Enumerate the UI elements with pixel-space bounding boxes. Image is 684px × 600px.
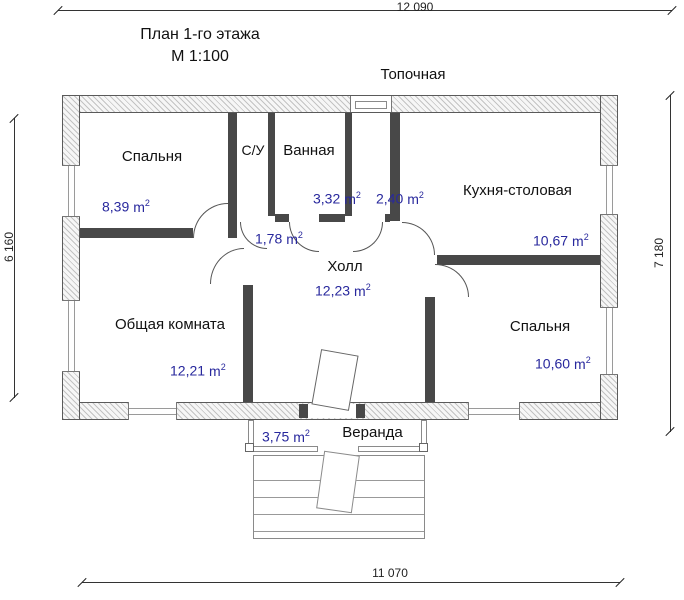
area-value: 12,23 [315, 283, 350, 299]
door-arc-boiler [353, 222, 383, 252]
area-sup: 2 [221, 362, 226, 372]
veranda-post-left [245, 443, 254, 452]
room-name-bedroom1: Спальня [92, 148, 212, 165]
room-name-hall: Холл [305, 258, 385, 275]
room-area-boiler: 2,40m2 [376, 190, 424, 207]
veranda-post-right [419, 443, 428, 452]
room-name-bedroom2: Спальня [485, 318, 595, 335]
window-right-1 [600, 165, 618, 215]
step-line [254, 514, 424, 515]
area-unit: m [344, 191, 356, 207]
area-sup: 2 [356, 190, 361, 200]
area-value: 2,40 [376, 191, 403, 207]
area-sup: 2 [366, 282, 371, 292]
area-value: 3,32 [313, 191, 340, 207]
wall-bathroom-bottom-left [275, 214, 289, 222]
room-name-wc: С/У [236, 142, 270, 158]
veranda-wall-bottom-right [358, 446, 427, 452]
exterior-wall-top [62, 95, 618, 113]
veranda-wall-bottom-left [248, 446, 318, 452]
boiler-exterior-door [350, 96, 392, 112]
room-area-veranda: 3,75m2 [262, 428, 310, 445]
window-bottom-2 [468, 402, 520, 420]
area-sup: 2 [584, 232, 589, 242]
room-area-livingroom: 12,21m2 [170, 362, 226, 379]
room-area-wc: 1,78m2 [255, 230, 303, 247]
room-area-bathroom: 3,32m2 [313, 190, 361, 207]
dim-label-bottom: 11 070 [330, 566, 450, 580]
window-glass [469, 408, 519, 415]
window-glass [68, 166, 75, 216]
wall-bedroom1-bottom [80, 228, 193, 238]
wall-bedroom2-hall [425, 297, 435, 402]
entrance-door-jamb-left [299, 404, 308, 418]
plan-title-line1: План 1-го этажа [110, 24, 290, 46]
area-value: 1,78 [255, 231, 282, 247]
area-sup: 2 [145, 198, 150, 208]
door-arc-kitchen [402, 222, 435, 255]
dim-label-left: 6 160 [2, 232, 16, 262]
door-arc-livingroom [210, 248, 244, 284]
window-glass [606, 308, 613, 374]
window-bottom-1 [128, 402, 177, 420]
dim-line-bottom [82, 582, 620, 583]
area-value: 12,21 [170, 363, 205, 379]
area-unit: m [572, 233, 584, 249]
area-value: 3,75 [262, 429, 289, 445]
area-sup: 2 [586, 355, 591, 365]
area-value: 10,67 [533, 233, 568, 249]
window-left-1 [62, 165, 80, 217]
area-unit: m [574, 356, 586, 372]
area-sup: 2 [419, 190, 424, 200]
floor-plan: План 1-го этажа М 1:100 Топочная 12 090 … [0, 0, 684, 600]
room-area-bedroom2: 10,60m2 [535, 355, 591, 372]
plan-scale: М 1:100 [110, 46, 290, 68]
room-name-veranda: Веранда [330, 424, 415, 441]
window-glass [68, 301, 75, 371]
room-area-hall: 12,23m2 [315, 282, 371, 299]
dim-line-right [670, 95, 671, 432]
wall-kitchen-bedroom2 [437, 255, 600, 265]
dim-label-right: 7 180 [652, 238, 666, 268]
window-glass [606, 166, 613, 214]
window-left-2 [62, 300, 80, 372]
room-area-kitchen: 10,67m2 [533, 232, 589, 249]
entrance-door-jamb-right [356, 404, 365, 418]
area-unit: m [133, 199, 145, 215]
boiler-door-leaf [355, 101, 387, 109]
wall-bedroom1-wc [228, 113, 237, 238]
plan-title: План 1-го этажа М 1:100 [110, 24, 290, 68]
room-name-kitchen: Кухня-столовая [445, 182, 590, 199]
door-arc-bedroom2 [435, 264, 469, 297]
room-name-livingroom: Общая комната [115, 312, 225, 338]
dim-label-top: 12 090 [360, 0, 470, 14]
area-unit: m [286, 231, 298, 247]
area-value: 10,60 [535, 356, 570, 372]
wall-bathroom-bottom-right [319, 214, 345, 222]
wall-boiler-bottom-stub [385, 214, 390, 222]
area-unit: m [209, 363, 221, 379]
area-sup: 2 [305, 428, 310, 438]
room-name-boiler: Топочная [368, 66, 458, 83]
window-glass [129, 408, 176, 415]
door-arc-bedroom1 [193, 203, 228, 238]
step-line [254, 531, 424, 532]
area-unit: m [293, 429, 305, 445]
wall-wc-bathroom [268, 113, 275, 216]
wall-livingroom-hall [243, 285, 253, 402]
room-name-bathroom: Ванная [277, 142, 341, 159]
area-sup: 2 [298, 230, 303, 240]
room-area-bedroom1: 8,39m2 [102, 198, 150, 215]
window-right-2 [600, 307, 618, 375]
area-unit: m [407, 191, 419, 207]
area-unit: m [354, 283, 366, 299]
area-value: 8,39 [102, 199, 129, 215]
